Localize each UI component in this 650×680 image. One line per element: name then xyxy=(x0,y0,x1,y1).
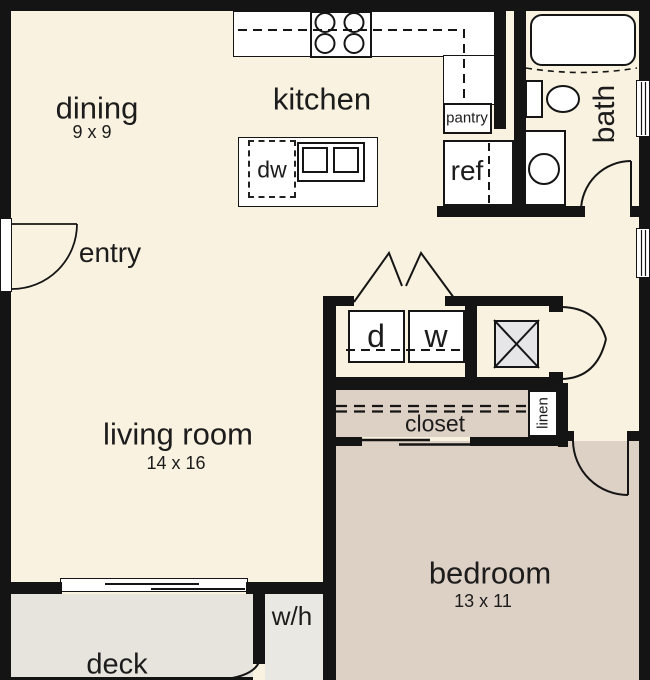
wall-living-bottom-left xyxy=(0,582,62,594)
wall-bath-left xyxy=(514,11,526,207)
wall-closet-bottom-right xyxy=(470,437,568,446)
deck-label: deck xyxy=(86,651,147,680)
kitchen-counter-right xyxy=(443,55,495,105)
linen-label: linen xyxy=(536,397,551,429)
entry-door-opening xyxy=(0,218,12,292)
entry-label: entry xyxy=(79,239,141,267)
sink-bowl-left xyxy=(302,147,328,173)
dryer-label: d xyxy=(367,320,385,352)
bifold-doors xyxy=(354,253,457,302)
kitchen-label: kitchen xyxy=(273,84,371,115)
wall-left-upper xyxy=(0,0,11,218)
wall-left-lower xyxy=(0,292,11,680)
wall-closet-bottom-left xyxy=(336,437,362,446)
hvac-double-doors xyxy=(562,307,606,379)
bath-label: bath xyxy=(590,85,620,143)
entry-door xyxy=(12,224,77,289)
dining-label: dining xyxy=(56,93,139,124)
wall-bath-door-stub xyxy=(630,206,639,217)
closet-label: closet xyxy=(405,413,465,436)
bedroom-dims: 13 x 11 xyxy=(454,592,512,610)
wall-bedroom-top-left-stub xyxy=(558,431,574,441)
dishwasher-label: dw xyxy=(257,159,286,182)
wall-laundry-right xyxy=(465,296,477,388)
bathtub xyxy=(530,14,636,66)
wall-closet-top xyxy=(336,383,568,390)
shower-curtain-line xyxy=(526,68,637,73)
toilet-bowl xyxy=(547,86,579,112)
refrigerator-label: ref xyxy=(451,157,484,185)
hvac-unit xyxy=(494,320,539,368)
floor-plan: dining 9 x 9 kitchen pantry ref dw entry… xyxy=(0,0,650,680)
wall-living-bedroom xyxy=(323,296,336,680)
living-room-label: living room xyxy=(103,419,253,450)
sliding-door xyxy=(60,578,248,592)
wall-water-heater-left xyxy=(253,594,265,664)
sink-bowl-right xyxy=(333,147,359,173)
wall-hvac-stub-top xyxy=(549,296,563,312)
wall-kitchen-bath-a xyxy=(494,11,506,129)
bedroom-label: bedroom xyxy=(429,558,551,589)
window-hall xyxy=(636,228,650,278)
wall-bedroom-top-right-stub xyxy=(627,431,639,441)
wall-laundry-stub-right xyxy=(445,296,465,306)
toilet-tank xyxy=(525,80,543,118)
water-heater-label: w/h xyxy=(272,603,312,629)
window-bath xyxy=(636,80,650,137)
wall-top xyxy=(0,0,650,11)
living-room-dims: 14 x 16 xyxy=(146,454,205,472)
washer-label: w xyxy=(424,320,447,352)
wall-kitchen-bath-bottom xyxy=(437,206,585,217)
dining-dims: 9 x 9 xyxy=(72,123,111,141)
bath-door xyxy=(581,161,631,211)
wall-laundry-stub-left xyxy=(336,296,354,306)
pantry-label: pantry xyxy=(446,111,488,126)
stove xyxy=(310,11,372,58)
bath-vanity xyxy=(523,130,566,206)
wall-living-bottom-right xyxy=(246,582,336,594)
